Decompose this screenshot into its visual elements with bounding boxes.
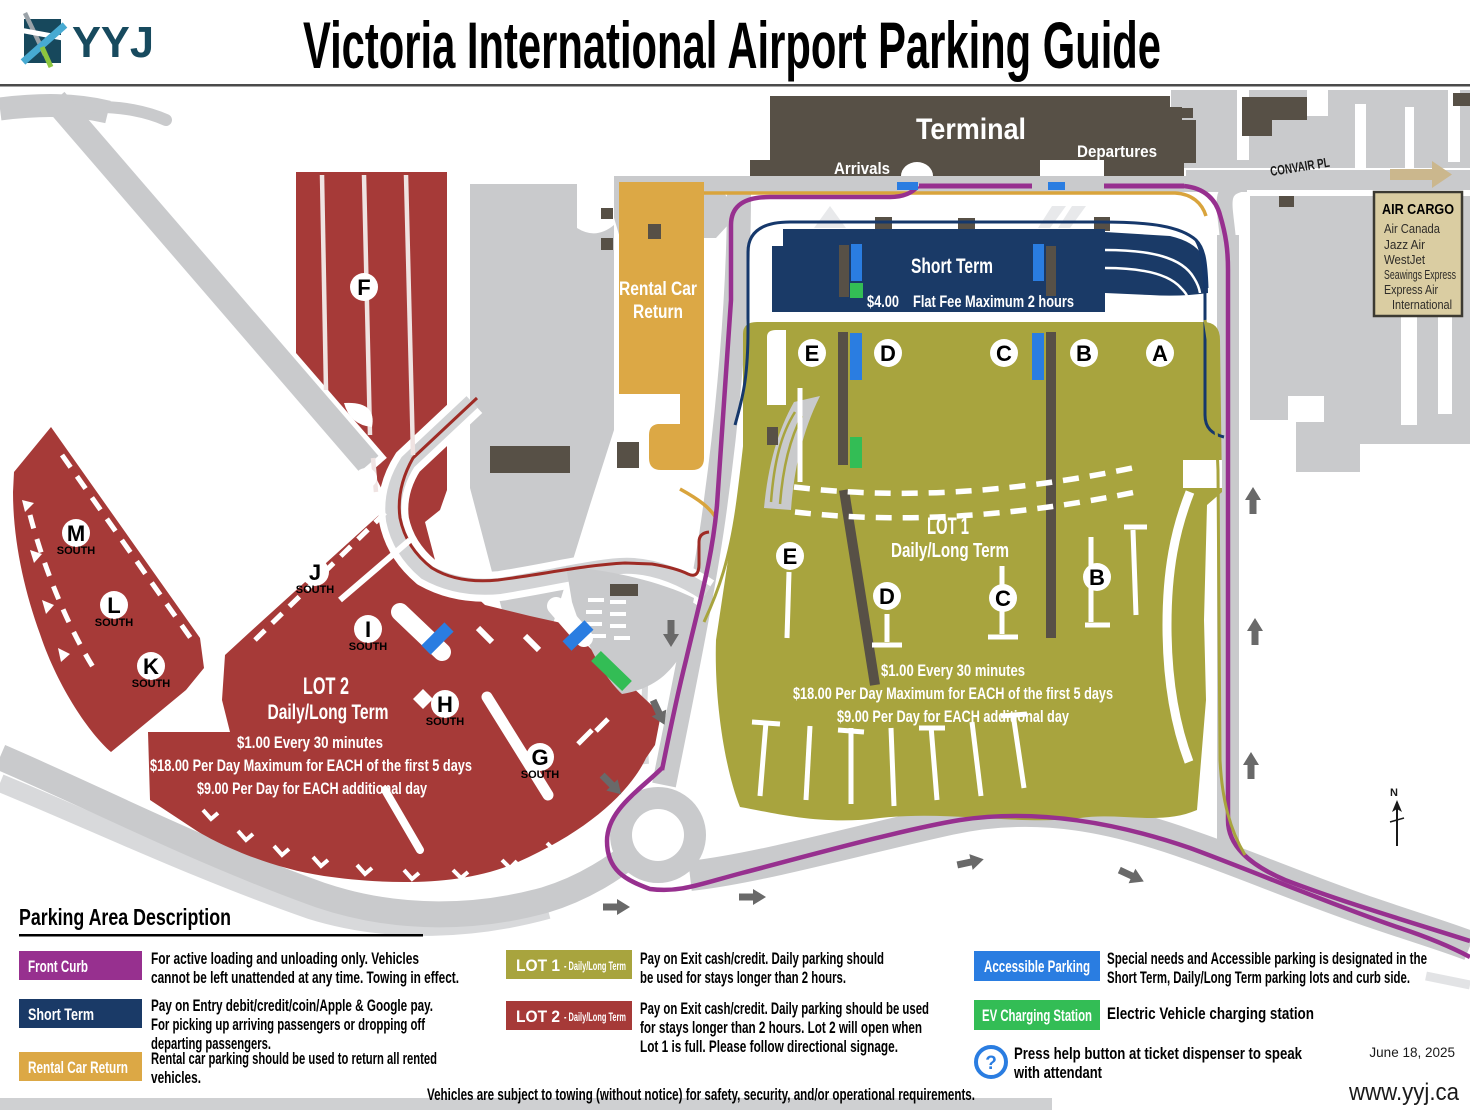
svg-text:Pay on Exit cash/credit. Daily: Pay on Exit cash/credit. Daily parking s… (640, 950, 884, 968)
svg-text:?: ? (985, 1053, 997, 1074)
svg-text:for stays longer than 2 hours.: for stays longer than 2 hours. Lot 2 wil… (640, 1019, 922, 1037)
svg-text:www.yyj.ca: www.yyj.ca (1348, 1079, 1460, 1106)
svg-text:D: D (880, 341, 896, 366)
svg-text:Daily/Long Term: Daily/Long Term (268, 701, 389, 724)
svg-text:C: C (996, 341, 1012, 366)
svg-text:J: J (309, 560, 321, 585)
svg-text:G: G (531, 745, 548, 770)
svg-text:Front Curb: Front Curb (28, 958, 88, 976)
svg-text:Press help button at ticket di: Press help button at ticket dispenser to… (1014, 1045, 1303, 1063)
svg-text:LOT 1: LOT 1 (927, 513, 969, 540)
svg-text:D: D (879, 584, 895, 609)
svg-text:Short Term, Daily/Long Term pa: Short Term, Daily/Long Term parking lots… (1107, 969, 1410, 987)
svg-text:$1.00 Every 30 minutes: $1.00 Every 30 minutes (881, 661, 1025, 680)
svg-text:K: K (143, 654, 159, 679)
svg-text:Daily/Long Term: Daily/Long Term (891, 540, 1009, 562)
svg-text:Air Canada: Air Canada (1384, 221, 1441, 236)
svg-text:$9.00 Per Day for EACH additi: $9.00 Per Day for EACH additional day (837, 707, 1069, 726)
svg-text:- Daily/Long Term: - Daily/Long Term (564, 959, 626, 973)
svg-text:International: International (1392, 297, 1452, 312)
svg-text:C: C (995, 586, 1011, 611)
svg-text:I: I (365, 617, 371, 642)
svg-text:Short Term: Short Term (28, 1006, 94, 1024)
svg-text:Lot 1 is full. Please follow: Lot 1 is full. Please follow directional… (640, 1038, 898, 1056)
svg-text:E: E (783, 544, 798, 569)
svg-text:Jazz Air: Jazz Air (1384, 237, 1426, 252)
svg-text:B: B (1076, 341, 1092, 366)
svg-text:SOUTH: SOUTH (426, 716, 465, 728)
svg-text:LOT 2: LOT 2 (516, 1007, 560, 1026)
svg-text:A: A (1152, 341, 1168, 366)
svg-text:Victoria International Airport: Victoria International Airport Parking G… (303, 8, 1161, 82)
svg-text:Flat Fee Maximum 2 hours: Flat Fee Maximum 2 hours (913, 292, 1074, 311)
svg-text:SOUTH: SOUTH (349, 641, 388, 653)
svg-text:- Daily/Long Term: - Daily/Long Term (564, 1010, 626, 1024)
svg-text:SOUTH: SOUTH (296, 584, 335, 596)
svg-text:$18.00 Per Day Maximum for EA: $18.00 Per Day Maximum for EACH of the f… (150, 756, 472, 775)
svg-text:EV Charging Station: EV Charging Station (982, 1007, 1092, 1025)
svg-text:Electric Vehicle charging stat: Electric Vehicle charging station (1107, 1005, 1314, 1023)
svg-text:Return: Return (633, 302, 683, 323)
svg-text:F: F (357, 275, 370, 300)
svg-text:LOT 1: LOT 1 (516, 956, 560, 975)
svg-text:SOUTH: SOUTH (95, 617, 134, 629)
svg-text:Rental Car Return: Rental Car Return (28, 1059, 128, 1077)
svg-text:L: L (107, 593, 120, 618)
svg-text:Arrivals: Arrivals (834, 159, 890, 178)
svg-text:SOUTH: SOUTH (57, 545, 96, 557)
svg-text:E: E (805, 341, 820, 366)
svg-text:For picking up arriving passen: For picking up arriving passengers or dr… (151, 1016, 425, 1034)
svg-text:Departures: Departures (1077, 142, 1157, 161)
svg-text:Parking Area Description: Parking Area Description (19, 904, 231, 930)
svg-text:vehicles.: vehicles. (151, 1069, 201, 1087)
svg-text:WestJet: WestJet (1384, 252, 1425, 267)
svg-text:B: B (1089, 565, 1105, 590)
svg-text:be used for stays longer than: be used for stays longer than 2 hours. (640, 969, 846, 987)
svg-text:LOT 2: LOT 2 (303, 673, 349, 700)
svg-text:H: H (437, 692, 453, 717)
svg-text:Special needs and Accessible p: Special needs and Accessible parking is … (1107, 950, 1427, 968)
svg-text:Vehicles are subject to towing: Vehicles are subject to towing (without … (427, 1086, 975, 1104)
svg-text:Express Air: Express Air (1384, 282, 1439, 297)
svg-text:M: M (67, 521, 85, 546)
svg-text:Rental car parking should be u: Rental car parking should be used to ret… (151, 1050, 437, 1068)
svg-text:Pay on Exit cash/credit. Daily: Pay on Exit cash/credit. Daily parking s… (640, 1000, 929, 1018)
svg-text:For active loading and unloadi: For active loading and unloading only. V… (151, 950, 419, 968)
svg-text:$18.00 Per Day Maximum for EA: $18.00 Per Day Maximum for EACH of the f… (793, 684, 1113, 703)
svg-text:with attendant: with attendant (1013, 1064, 1102, 1082)
svg-text:N: N (1390, 787, 1398, 799)
svg-text:AIR CARGO: AIR CARGO (1382, 201, 1454, 218)
svg-text:$9.00 Per Day for EACH additi: $9.00 Per Day for EACH additional day (197, 779, 427, 798)
svg-text:Terminal: Terminal (916, 113, 1026, 146)
svg-text:$4.00: $4.00 (867, 292, 899, 311)
svg-text:Seawings Express: Seawings Express (1384, 267, 1456, 282)
svg-text:Pay on Entry debit/credit/coin: Pay on Entry debit/credit/coin/Apple & G… (151, 997, 433, 1015)
svg-text:$1.00 Every 30 minutes: $1.00 Every 30 minutes (237, 733, 383, 752)
svg-text:Accessible Parking: Accessible Parking (984, 958, 1090, 976)
svg-text:cannot be left unattended at a: cannot be left unattended at any time. T… (151, 969, 459, 987)
svg-text:June 18, 2025: June 18, 2025 (1369, 1045, 1455, 1060)
svg-text:Short Term: Short Term (911, 255, 993, 278)
svg-text:Rental Car: Rental Car (619, 279, 697, 300)
svg-text:YYJ: YYJ (72, 18, 154, 67)
svg-text:SOUTH: SOUTH (521, 769, 560, 781)
svg-text:SOUTH: SOUTH (132, 678, 171, 690)
